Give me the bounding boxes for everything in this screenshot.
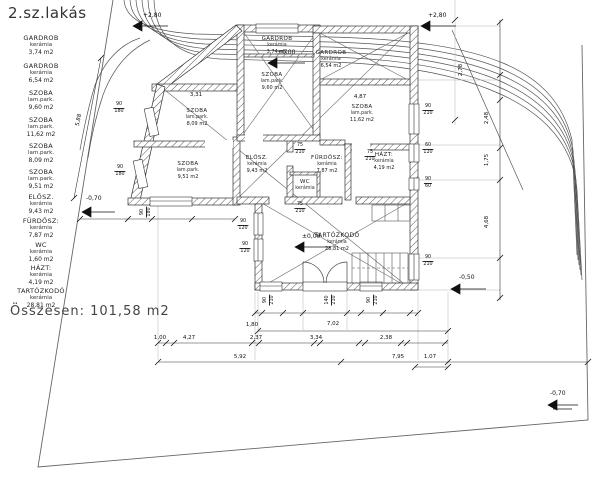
room-name: TARTÓZKODÓ <box>314 232 359 240</box>
plan-room-wc: WC kerámia <box>295 179 314 192</box>
opening-height: 210 <box>422 111 433 117</box>
level-mark: +2,80 <box>428 12 446 19</box>
room-area: 9,60 m2 <box>261 85 284 92</box>
opening-height: 210 <box>294 150 305 156</box>
room-finish: kerámia <box>8 42 74 49</box>
dim-label: 2,48 <box>484 112 490 124</box>
room-area: 1,60 m2 <box>8 256 74 264</box>
opening-size-label: 90 210 <box>422 104 433 116</box>
plan-room-szoba-1162: SZOBA lam.park. 11,62 m2 <box>350 104 374 124</box>
opening-size-label: 90 180 <box>114 165 125 177</box>
room-area: 28,81 m2 <box>314 246 359 253</box>
opening-height: 180 <box>147 206 153 217</box>
room-name: SZOBA <box>8 89 74 97</box>
level-mark: ±0,00 <box>277 49 295 56</box>
plan-room-tartozkodo: TARTÓZKODÓ kerámia 28,81 m2 <box>314 232 359 253</box>
legend-room-elosz: ELŐSZ. kerámia 9,43 m2 <box>8 193 74 216</box>
opening-height: 210 <box>364 157 375 163</box>
dim-label: 1,00 <box>154 335 166 341</box>
dim-label: 4,87 <box>354 94 366 100</box>
dim-label: 2,38 <box>380 335 392 341</box>
legend-room-szoba-4: SZOBA lam.park. 9,51 m2 <box>8 168 74 191</box>
room-finish: kerámia <box>8 249 74 256</box>
double-door <box>303 262 347 283</box>
room-finish: lam.park. <box>8 97 74 104</box>
legend-room-hazt: HÁZT: kerámia 4,19 m2 <box>8 264 74 287</box>
dim-label: 3,31 <box>190 92 202 98</box>
room-area: 9,43 m2 <box>246 168 268 175</box>
opening-size-label: 140 210 <box>325 294 337 305</box>
legend-room-szoba-3: SZOBA lam.park. 8,09 m2 <box>8 142 74 165</box>
plan-room-elosz: ELŐSZ. kerámia 9,43 m2 <box>246 155 268 175</box>
opening-height: 210 <box>374 294 380 305</box>
opening-height: 120 <box>422 150 433 156</box>
room-area: 3,74 m2 <box>8 49 74 57</box>
room-name: SZOBA <box>8 142 74 150</box>
room-area: 7,87 m2 <box>8 232 74 240</box>
opening-size-label: 90 180 <box>113 102 124 114</box>
opening-height: 120 <box>239 249 250 255</box>
room-finish: kerámia <box>8 272 74 279</box>
room-area: 9,51 m2 <box>177 174 200 181</box>
room-name: SZOBA <box>8 168 74 176</box>
opening-height: 210 <box>422 262 433 268</box>
room-area: 6,54 m2 <box>316 63 347 70</box>
legend-room-gardrob-1: GARDROB kerámia 3,74 m2 <box>8 34 74 57</box>
sheet-title: 2.sz.lakás <box>8 4 87 22</box>
plan-room-szoba-960: SZOBA lam.park. 9,60 m2 <box>261 72 284 92</box>
level-mark: -0,70 <box>550 390 566 397</box>
dim-label: 7,95 <box>392 354 404 360</box>
opening-size-label: 75 210 <box>364 150 375 162</box>
opening-size-label: 90 210 <box>263 294 275 305</box>
dim-label: 7,02 <box>327 321 339 327</box>
room-area: 11,62 m2 <box>350 117 374 124</box>
room-name: HÁZT: <box>8 264 74 272</box>
opening-height: 180 <box>113 109 124 115</box>
stair <box>352 205 410 283</box>
dim-label: 1,07 <box>424 354 436 360</box>
room-area: 9,60 m2 <box>8 104 74 112</box>
plan-drawing <box>0 0 600 478</box>
opening-size-label: 90 210 <box>367 294 379 305</box>
opening-height: 210 <box>332 294 338 305</box>
dim-label: 2,37 <box>250 335 262 341</box>
room-finish: lam.park. <box>8 176 74 183</box>
opening-height: 210 <box>294 209 305 215</box>
room-finish: kerámia <box>8 70 74 77</box>
room-area: 8,09 m2 <box>186 121 209 128</box>
room-area: 6,54 m2 <box>8 77 74 85</box>
room-area: 9,51 m2 <box>8 183 74 191</box>
room-name: WC <box>8 241 74 249</box>
dim-label: 3,34 <box>310 335 322 341</box>
opening-size-label: 90 180 <box>140 206 152 217</box>
room-area: 7,87 m2 <box>311 168 343 175</box>
opening-size-label: 90 210 <box>422 255 433 267</box>
room-name: SZOBA <box>8 116 74 124</box>
level-mark: +2,80 <box>143 12 161 19</box>
dim-label: 5,92 <box>234 354 246 360</box>
room-finish: lam.park. <box>8 150 74 157</box>
plan-room-gardrob-2: GARDROB kerámia 6,54 m2 <box>316 50 347 70</box>
room-finish: kerámia <box>8 201 74 208</box>
level-mark: -0,50 <box>459 274 475 281</box>
dim-label: 1,75 <box>484 154 490 166</box>
legend-room-szoba-1: SZOBA lam.park. 9,60 m2 <box>8 89 74 112</box>
room-area: 4,19 m2 <box>374 165 395 172</box>
level-mark: -0,70 <box>86 195 102 202</box>
opening-size-label: 90 120 <box>237 219 248 231</box>
room-finish: kerámia <box>8 295 74 302</box>
opening-size-label: 75 210 <box>294 143 305 155</box>
total-area-label: Összesen: 101,58 m2 <box>10 304 170 319</box>
room-name: ELŐSZ. <box>8 193 74 201</box>
plan-room-szoba-809: SZOBA lam.park. 8,09 m2 <box>186 108 209 128</box>
opening-height: 180 <box>114 172 125 178</box>
room-finish: lam.park. <box>8 124 74 131</box>
dim-label: 4,27 <box>183 335 195 341</box>
legend-room-furdosz: FÜRDŐSZ: kerámia 7,87 m2 <box>8 217 74 240</box>
room-name: FÜRDŐSZ: <box>8 217 74 225</box>
opening-height: 60 <box>424 184 432 190</box>
dim-label: 4,68 <box>484 216 490 228</box>
dim-label: 1,80 <box>246 322 258 328</box>
room-name: GARDROB <box>8 62 74 70</box>
room-area: 11,62 m2 <box>8 131 74 139</box>
room-area: 9,43 m2 <box>8 208 74 216</box>
opening-size-label: 90 120 <box>239 242 250 254</box>
plan-room-furdosz: FÜRDŐSZ: kerámia 7,87 m2 <box>311 155 343 175</box>
opening-height: 210 <box>270 294 276 305</box>
room-finish: kerámia <box>295 186 314 192</box>
plan-room-hazt: HÁZT: kerámia 4,19 m2 <box>374 152 395 172</box>
room-area: 4,19 m2 <box>8 279 74 287</box>
level-mark: ±0,00 <box>302 233 320 240</box>
room-name: GARDROB <box>8 34 74 42</box>
room-finish: kerámia <box>8 225 74 232</box>
dim-label: 2,78 <box>458 64 464 76</box>
legend-room-wc: WC kerámia 1,60 m2 <box>8 241 74 264</box>
opening-size-label: 75 210 <box>294 202 305 214</box>
plan-room-szoba-951: SZOBA lam.park. 9,51 m2 <box>177 161 200 181</box>
opening-size-label: 60 120 <box>422 143 433 155</box>
opening-height: 120 <box>237 226 248 232</box>
opening-size-label: 90 60 <box>424 177 432 189</box>
room-name: TARTÓZKODÓ <box>8 287 74 295</box>
floor-plan-sheet: 2.sz.lakás GARDROB kerámia 3,74 m2 GARDR… <box>0 0 600 478</box>
room-area: 8,09 m2 <box>8 157 74 165</box>
legend-room-szoba-2: SZOBA lam.park. 11,62 m2 <box>8 116 74 139</box>
legend-room-gardrob-2: GARDROB kerámia 6,54 m2 <box>8 62 74 85</box>
